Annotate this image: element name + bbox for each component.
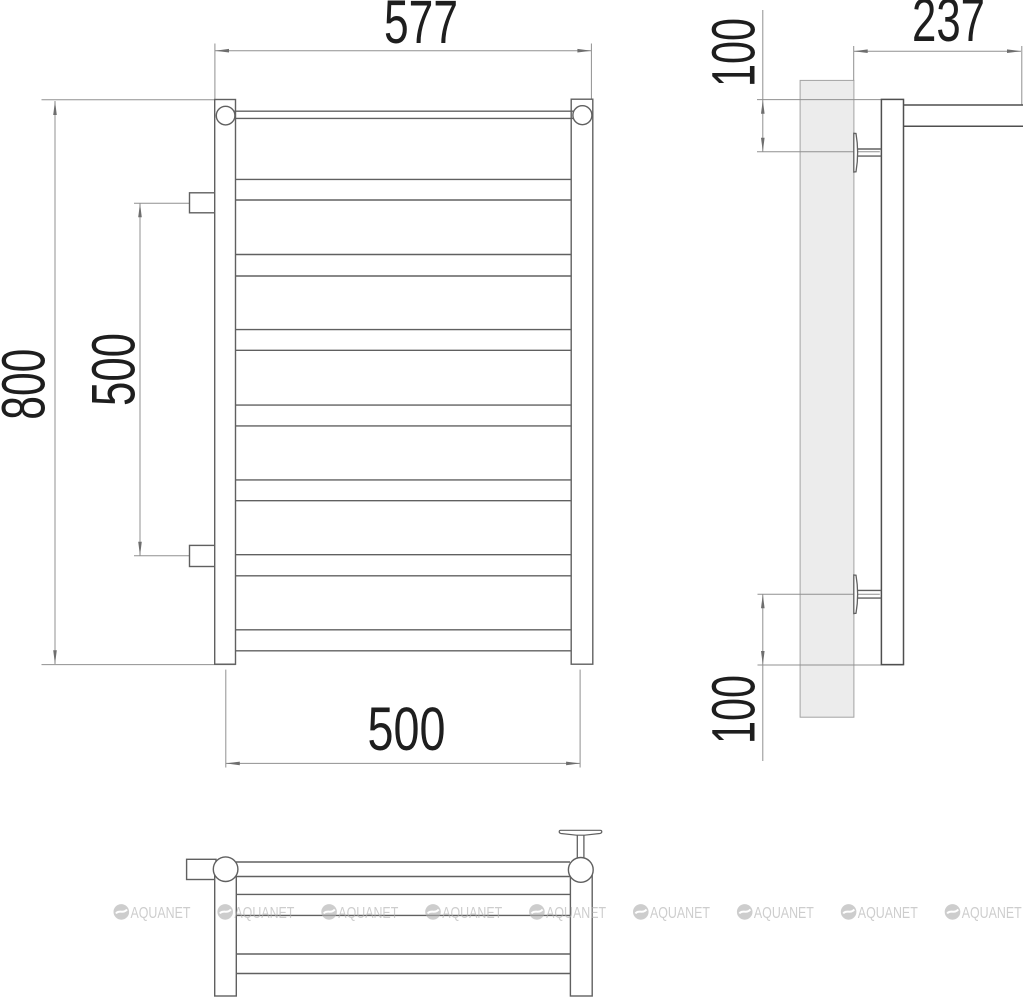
svg-text:500: 500 [368,695,446,763]
svg-text:AQUANET: AQUANET [650,905,710,922]
svg-text:AQUANET: AQUANET [234,905,294,922]
svg-text:AQUANET: AQUANET [131,905,191,922]
svg-text:800: 800 [0,349,58,420]
svg-text:500: 500 [80,333,148,406]
svg-text:100: 100 [700,18,768,87]
svg-text:AQUANET: AQUANET [338,905,398,922]
svg-text:100: 100 [700,675,768,744]
svg-text:237: 237 [912,0,985,54]
svg-text:AQUANET: AQUANET [962,905,1022,922]
svg-text:AQUANET: AQUANET [754,905,814,922]
svg-text:AQUANET: AQUANET [546,905,606,922]
svg-text:AQUANET: AQUANET [442,905,502,922]
svg-text:AQUANET: AQUANET [858,905,918,922]
svg-text:577: 577 [384,0,458,56]
